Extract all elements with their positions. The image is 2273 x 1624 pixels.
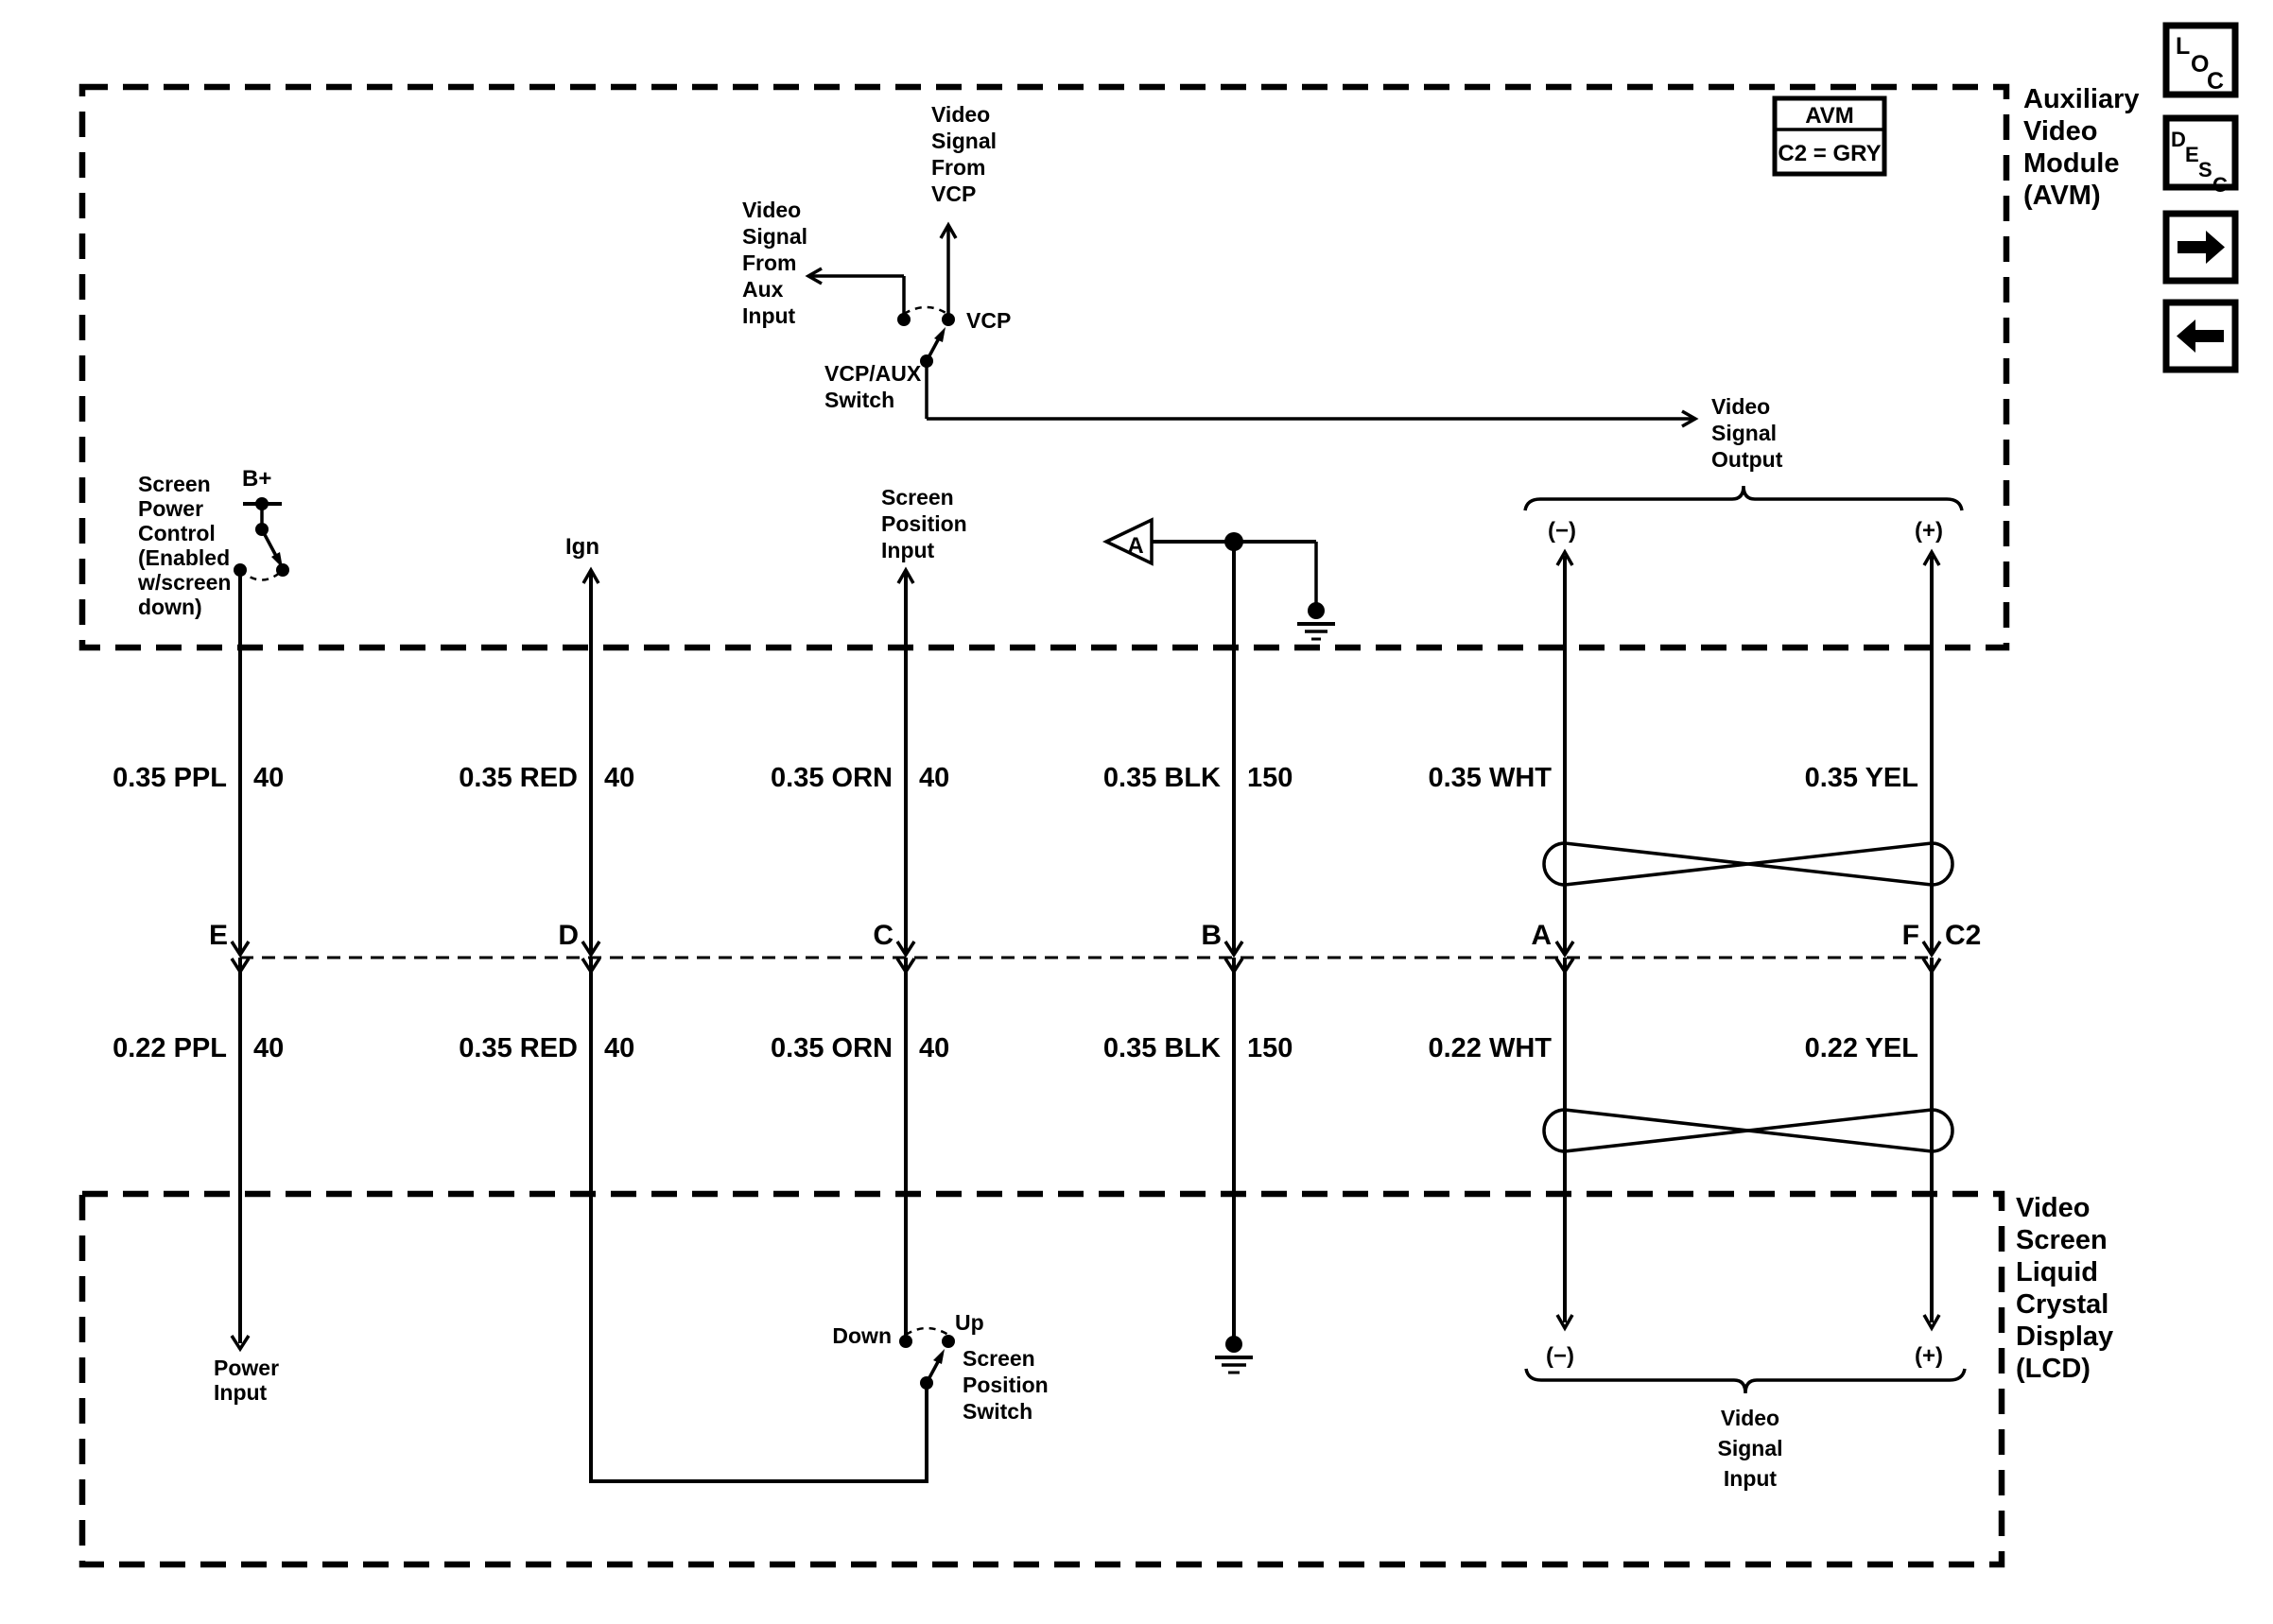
lcd-module-name: Video Screen Liquid Crystal Display (LCD… (2016, 1193, 2113, 1384)
svg-text:down): down) (138, 595, 202, 619)
svg-text:40: 40 (253, 1033, 284, 1063)
wiring-diagram-canvas: AVM C2 = GRY L O C D E S C Auxiliary Vid… (0, 0, 2273, 1624)
screen-position-switch: Down Up Screen Position Switch (832, 1310, 1048, 1424)
svg-text:150: 150 (1247, 1033, 1293, 1063)
lcd-ground (1215, 1336, 1253, 1373)
svg-text:Display: Display (2016, 1322, 2113, 1352)
svg-text:Switch: Switch (963, 1399, 1032, 1424)
svg-text:Input: Input (214, 1380, 268, 1405)
video-signal-input-terminals: (−) (+) Video Signal Input (1526, 1343, 1965, 1491)
svg-text:150: 150 (1247, 763, 1293, 793)
avm-module-name: Auxiliary Video Module (AVM) (2023, 84, 2140, 211)
aux-contact (897, 313, 911, 326)
svg-text:Input: Input (881, 538, 935, 562)
svg-text:Signal: Signal (742, 224, 807, 249)
svg-text:0.22 WHT: 0.22 WHT (1428, 1033, 1552, 1063)
up-label: Up (955, 1310, 984, 1335)
lever-arrowhead (934, 327, 946, 342)
svg-text:0.35 RED: 0.35 RED (459, 1033, 578, 1063)
desc-letter-3: C (2212, 173, 2228, 197)
svg-text:Signal: Signal (931, 129, 997, 153)
svg-text:Video: Video (931, 102, 990, 127)
input-brace (1526, 1369, 1965, 1393)
desc-button[interactable]: D E S C (2166, 118, 2235, 197)
svg-text:0.35 ORN: 0.35 ORN (771, 1033, 893, 1063)
svg-text:Video: Video (2023, 116, 2097, 147)
svg-text:B: B (1201, 920, 1222, 951)
svg-text:From: From (931, 155, 986, 180)
svg-text:40: 40 (253, 763, 284, 793)
svg-text:0.22 PPL: 0.22 PPL (113, 1033, 227, 1063)
svg-text:Signal: Signal (1711, 421, 1777, 445)
twisted-pair-lower (1544, 1110, 1952, 1151)
desc-letter-0: D (2171, 128, 2186, 151)
power-switch-lever (262, 529, 277, 558)
svg-text:0.35 ORN: 0.35 ORN (771, 763, 893, 793)
svg-text:Output: Output (1711, 447, 1783, 472)
svg-text:Video: Video (742, 198, 801, 222)
output-minus-label: (−) (1548, 518, 1576, 544)
svg-text:VCP/AUX: VCP/AUX (824, 361, 922, 386)
svg-text:Screen: Screen (138, 472, 211, 496)
svg-text:Video: Video (1711, 394, 1770, 419)
power-input-label: Power Input (214, 1356, 279, 1405)
svg-text:Crystal: Crystal (2016, 1289, 2108, 1320)
prev-page-button[interactable] (2166, 302, 2235, 370)
svg-text:(LCD): (LCD) (2016, 1354, 2091, 1384)
svg-text:Power: Power (138, 496, 203, 521)
svg-text:0.35 RED: 0.35 RED (459, 763, 578, 793)
svg-text:D: D (558, 920, 579, 951)
ground-reference-a: A (1106, 520, 1335, 639)
down-contact (899, 1335, 912, 1348)
output-plus-label: (+) (1915, 518, 1943, 544)
screen-power-control-switch: B+ Screen Power Control (Enabled w/scree… (137, 466, 289, 619)
desc-letter-2: S (2198, 158, 2212, 181)
twisted-pair-upper (1544, 843, 1952, 885)
connector-c2-label: C2 (1945, 920, 1981, 951)
svg-text:E: E (209, 920, 228, 951)
svg-text:(Enabled: (Enabled (138, 545, 230, 570)
input-minus-label: (−) (1546, 1343, 1574, 1369)
svg-text:w/screen: w/screen (137, 570, 231, 595)
svg-text:40: 40 (604, 763, 634, 793)
wiring-diagram-page: AVM C2 = GRY L O C D E S C Auxiliary Vid… (0, 0, 2273, 1624)
desc-letter-1: E (2185, 143, 2199, 166)
b-plus-label: B+ (242, 466, 271, 492)
vcp-aux-switch-cluster: Video Signal From VCP Video Signal From … (742, 102, 1783, 472)
svg-text:Screen: Screen (881, 485, 954, 510)
svg-text:VCP: VCP (931, 181, 976, 206)
svg-text:Liquid: Liquid (2016, 1257, 2098, 1287)
avm-tag-connector: C2 = GRY (1778, 141, 1881, 166)
down-label: Down (832, 1323, 892, 1348)
svg-text:0.35 YEL: 0.35 YEL (1805, 763, 1918, 793)
svg-text:Video: Video (2016, 1193, 2090, 1223)
svg-text:Position: Position (881, 511, 967, 536)
svg-text:Signal: Signal (1717, 1436, 1782, 1460)
svg-text:Switch: Switch (824, 388, 894, 412)
svg-text:Input: Input (1724, 1466, 1778, 1491)
next-page-button[interactable] (2166, 214, 2235, 281)
switch-travel-arc (904, 307, 947, 314)
svg-text:Screen: Screen (963, 1346, 1035, 1371)
svg-text:A: A (1531, 920, 1552, 951)
svg-text:0.35 BLK: 0.35 BLK (1103, 1033, 1221, 1063)
loc-button[interactable]: L O C (2166, 26, 2235, 95)
vcp-contact (942, 313, 955, 326)
svg-text:Aux: Aux (742, 277, 784, 302)
video-signal-output-terminals: (−) (+) (1525, 486, 1962, 565)
svg-text:From: From (742, 251, 797, 275)
loc-letter-0: L (2176, 33, 2190, 60)
output-brace (1525, 486, 1962, 510)
lower-wire-labels: 0.22 PPL 40 0.35 RED 40 0.35 ORN 40 0.35… (113, 1033, 1918, 1063)
ign-label: Ign (565, 534, 599, 560)
svg-text:Video: Video (1721, 1406, 1779, 1430)
svg-text:40: 40 (919, 763, 949, 793)
svg-text:0.35 WHT: 0.35 WHT (1428, 763, 1552, 793)
svg-text:F: F (1902, 920, 1919, 951)
upper-wire-labels: 0.35 PPL 40 0.35 RED 40 0.35 ORN 40 0.35… (113, 763, 1918, 793)
svg-text:Auxiliary: Auxiliary (2023, 84, 2140, 114)
svg-text:Module: Module (2023, 148, 2120, 179)
svg-text:Position: Position (963, 1373, 1049, 1397)
vcp-contact-label: VCP (966, 308, 1011, 333)
inline-connector-row: E D C B A F C2 (209, 920, 1981, 972)
avm-module-box (82, 87, 2006, 648)
svg-text:C: C (873, 920, 894, 951)
input-plus-label: (+) (1915, 1343, 1943, 1369)
switch-travel-arc (906, 1328, 948, 1335)
loc-letter-2: C (2207, 68, 2224, 95)
svg-text:40: 40 (604, 1033, 634, 1063)
svg-text:Control: Control (138, 521, 216, 545)
svg-text:Screen: Screen (2016, 1225, 2108, 1255)
lever-arrowhead (933, 1349, 945, 1364)
svg-text:Input: Input (742, 303, 796, 328)
svg-text:Power: Power (214, 1356, 279, 1380)
svg-text:0.35 BLK: 0.35 BLK (1103, 763, 1221, 793)
svg-text:0.35 PPL: 0.35 PPL (113, 763, 227, 793)
svg-text:(AVM): (AVM) (2023, 181, 2101, 211)
svg-text:0.22 YEL: 0.22 YEL (1805, 1033, 1918, 1063)
screen-position-input-label: Screen Position Input (881, 485, 967, 562)
up-contact (942, 1335, 955, 1348)
avm-connector-tag: AVM C2 = GRY (1775, 98, 1884, 174)
avm-tag-name: AVM (1805, 103, 1854, 129)
svg-text:40: 40 (919, 1033, 949, 1063)
reference-letter: A (1127, 533, 1143, 559)
